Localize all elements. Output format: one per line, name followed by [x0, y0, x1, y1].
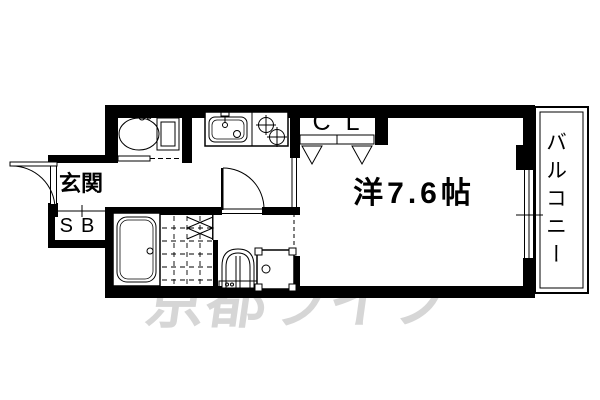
floorplan-image: 京都ライフ [0, 0, 600, 400]
main-room-label: 洋7.6帖 [295, 173, 533, 215]
closet-label: CL [294, 106, 378, 138]
bathtub-icon [113, 213, 160, 286]
balcony-label: バルコニー [540, 109, 570, 293]
shoe-box-label: SB [46, 212, 108, 240]
washing-machine-pan-icon [255, 248, 296, 291]
entrance-label: 玄関 [54, 169, 108, 199]
kitchen-counter [205, 111, 288, 147]
washbasin-icon [219, 249, 257, 288]
